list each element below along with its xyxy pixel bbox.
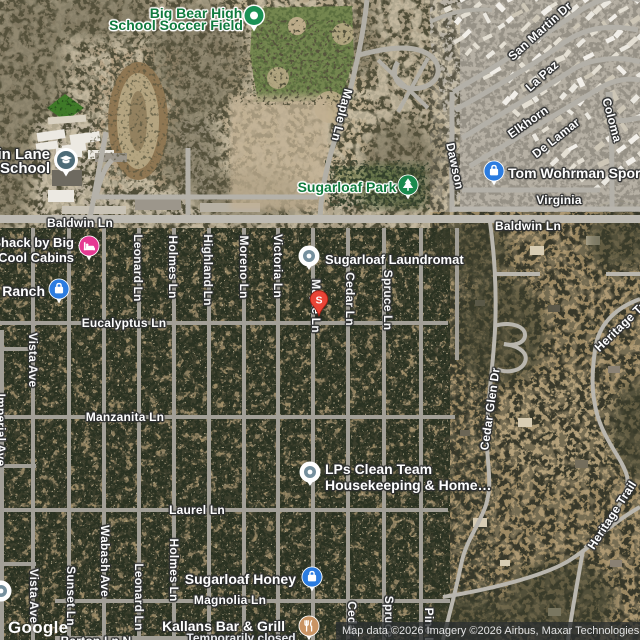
svg-text:S: S — [315, 294, 322, 306]
